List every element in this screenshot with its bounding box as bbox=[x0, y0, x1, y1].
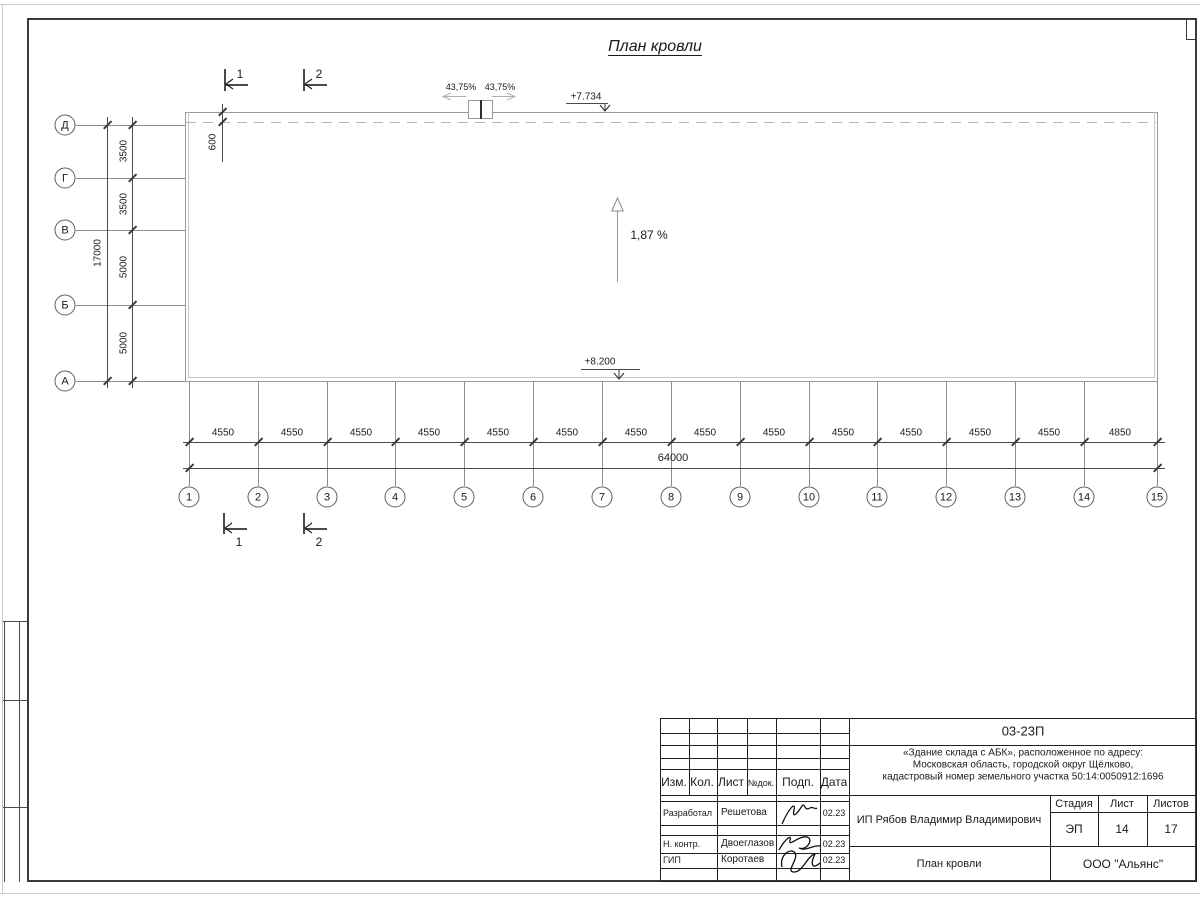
elevation-top-arrow-icon bbox=[599, 104, 611, 112]
section-2-label: 2 bbox=[316, 535, 323, 549]
axis-col-circle: 3 bbox=[317, 487, 338, 508]
axis-col-circle: 9 bbox=[730, 487, 751, 508]
axis-col-line bbox=[533, 381, 534, 486]
dim-label: 4850 bbox=[1109, 428, 1131, 439]
dim-line-cols bbox=[183, 442, 1165, 443]
axis-col-circle: 2 bbox=[248, 487, 269, 508]
signature bbox=[777, 845, 823, 875]
section-arrow-icon bbox=[304, 522, 313, 534]
drain-funnel-axis bbox=[480, 100, 482, 119]
signer-date: 02.23 bbox=[823, 855, 846, 865]
axis-col-line bbox=[877, 381, 878, 486]
company-name: ООО "Альянс" bbox=[1083, 857, 1163, 871]
section-arrow-icon bbox=[224, 522, 233, 534]
axis-row-circle: Д bbox=[55, 115, 76, 136]
dim-label: 4550 bbox=[556, 428, 578, 439]
left-stamp-line bbox=[4, 621, 5, 882]
dim-line-rows bbox=[132, 117, 133, 388]
roof-inner-outline bbox=[188, 112, 1155, 378]
titleblock-line bbox=[660, 745, 1197, 746]
dim-label: 4550 bbox=[487, 428, 509, 439]
slope-arrow-right-icon bbox=[491, 92, 517, 101]
dim-label-parapet: 600 bbox=[208, 134, 219, 151]
axis-row-circle: В bbox=[55, 220, 76, 241]
signer-role: ГИП bbox=[663, 855, 681, 865]
titleblock-line bbox=[717, 718, 718, 882]
signer-name: Двоеглазов bbox=[721, 838, 774, 849]
elevation-top-label: +7.734 bbox=[571, 92, 602, 103]
slope-label-right: 43,75% bbox=[485, 82, 516, 92]
dim-label: 4550 bbox=[625, 428, 647, 439]
axis-col-line bbox=[809, 381, 810, 486]
col-header-data: Дата bbox=[821, 775, 848, 789]
titleblock-line bbox=[1050, 795, 1051, 882]
section-1-label: 1 bbox=[236, 535, 243, 549]
dim-label: 4550 bbox=[763, 428, 785, 439]
slope-main-label: 1,87 % bbox=[630, 228, 667, 242]
frame-corner-box bbox=[1186, 20, 1197, 40]
dim-label: 4550 bbox=[969, 428, 991, 439]
dim-line-row-total bbox=[107, 117, 108, 388]
stage-value: ЭП bbox=[1065, 822, 1082, 836]
dim-label: 4550 bbox=[832, 428, 854, 439]
signature bbox=[779, 799, 819, 827]
axis-col-line bbox=[1157, 381, 1158, 486]
drawing-sheet: План кровли 43,75% 43,75% +7.734 +8.200 … bbox=[0, 0, 1200, 900]
dim-total-label: 64000 bbox=[658, 452, 689, 464]
signer-date: 02.23 bbox=[823, 808, 846, 818]
titleblock-line bbox=[849, 846, 1197, 847]
section-arrow-icon bbox=[304, 78, 313, 90]
dim-label: 3500 bbox=[119, 140, 130, 162]
axis-col-line bbox=[671, 381, 672, 486]
axis-col-circle: 7 bbox=[592, 487, 613, 508]
titleblock-line bbox=[1098, 795, 1099, 846]
drawing-name: План кровли bbox=[917, 858, 982, 870]
axis-col-circle: 10 bbox=[799, 487, 820, 508]
dim-label: 3500 bbox=[119, 193, 130, 215]
left-stamp-line bbox=[3, 700, 27, 701]
dim-label: 4550 bbox=[1038, 428, 1060, 439]
titleblock-line bbox=[660, 801, 849, 802]
signer-name: Решетова bbox=[721, 807, 767, 818]
axis-col-circle: 12 bbox=[936, 487, 957, 508]
axis-row-circle: Б bbox=[55, 295, 76, 316]
sheet-value: 14 bbox=[1115, 822, 1128, 836]
client-name: ИП Рябов Владимир Владимирович bbox=[857, 814, 1042, 826]
axis-col-circle: 6 bbox=[523, 487, 544, 508]
dim-line-col-total bbox=[183, 468, 1165, 469]
titleblock-line bbox=[1147, 795, 1148, 846]
sheet-edge-top bbox=[0, 4, 1200, 5]
signer-date: 02.23 bbox=[823, 839, 846, 849]
project-line: Московская область, городской округ Щёлк… bbox=[913, 760, 1134, 771]
sheet-label: Лист bbox=[1110, 798, 1134, 810]
roof-parapet-dashed-line bbox=[186, 122, 1156, 123]
dim-label: 4550 bbox=[900, 428, 922, 439]
sheets-value: 17 bbox=[1164, 822, 1177, 836]
axis-col-line bbox=[946, 381, 947, 486]
slope-label-left: 43,75% bbox=[446, 82, 477, 92]
titleblock-line bbox=[660, 825, 849, 826]
titleblock-line bbox=[849, 718, 850, 882]
axis-col-line bbox=[1015, 381, 1016, 486]
titleblock-line bbox=[660, 769, 849, 770]
axis-col-line bbox=[602, 381, 603, 486]
sheets-label: Листов bbox=[1153, 798, 1189, 810]
sheet-edge-left bbox=[2, 4, 3, 893]
dim-label: 4550 bbox=[281, 428, 303, 439]
axis-col-circle: 1 bbox=[179, 487, 200, 508]
axis-col-line bbox=[327, 381, 328, 486]
left-stamp-line bbox=[3, 621, 27, 622]
titleblock-line bbox=[1050, 812, 1197, 813]
dim-label: 5000 bbox=[119, 256, 130, 278]
elevation-bottom-arrow-icon bbox=[613, 372, 625, 380]
dim-label: 4550 bbox=[418, 428, 440, 439]
titleblock-line bbox=[660, 795, 1197, 796]
sheet-edge-bottom bbox=[0, 893, 1200, 894]
axis-col-circle: 15 bbox=[1147, 487, 1168, 508]
col-header-izm: Изм. bbox=[661, 775, 687, 789]
axis-col-circle: 11 bbox=[867, 487, 888, 508]
axis-col-line bbox=[258, 381, 259, 486]
axis-col-circle: 13 bbox=[1005, 487, 1026, 508]
section-2-label: 2 bbox=[316, 67, 323, 81]
axis-row-circle: Г bbox=[55, 168, 76, 189]
slope-direction-arrow-icon bbox=[609, 196, 626, 284]
axis-col-circle: 4 bbox=[385, 487, 406, 508]
page-title: План кровли bbox=[608, 38, 702, 56]
axis-col-circle: 14 bbox=[1074, 487, 1095, 508]
dim-label: 4550 bbox=[350, 428, 372, 439]
dim-total-label: 17000 bbox=[93, 239, 104, 267]
titleblock-line bbox=[660, 733, 849, 734]
axis-col-circle: 5 bbox=[454, 487, 475, 508]
project-line: «Здание склада с АБК», расположенное по … bbox=[903, 748, 1143, 759]
left-stamp-line bbox=[3, 807, 27, 808]
section-arrow-icon bbox=[225, 78, 234, 90]
dim-label: 5000 bbox=[119, 332, 130, 354]
col-header-kol: Кол. bbox=[690, 775, 714, 789]
stage-label: Стадия bbox=[1055, 798, 1093, 810]
col-header-ndok: №док. bbox=[748, 778, 774, 788]
doc-number: 03-23П bbox=[1002, 724, 1045, 739]
col-header-podp: Подп. bbox=[782, 775, 814, 789]
signer-role: Н. контр. bbox=[663, 839, 700, 849]
elevation-bottom-label: +8.200 bbox=[585, 357, 616, 368]
dim-label: 4550 bbox=[694, 428, 716, 439]
slope-arrow-left-icon bbox=[441, 92, 467, 101]
axis-col-line bbox=[395, 381, 396, 486]
axis-col-line bbox=[464, 381, 465, 486]
axis-col-line bbox=[1084, 381, 1085, 486]
project-line: кадастровый номер земельного участка 50:… bbox=[882, 772, 1163, 783]
elevation-bottom-leader bbox=[581, 369, 640, 370]
section-1-label: 1 bbox=[237, 67, 244, 81]
axis-row-circle: А bbox=[55, 371, 76, 392]
signer-name: Коротаев bbox=[721, 854, 764, 865]
titleblock-line bbox=[660, 758, 849, 759]
col-header-list: Лист bbox=[718, 775, 744, 789]
signer-role: Разработал bbox=[663, 808, 712, 818]
axis-col-line bbox=[189, 381, 190, 486]
axis-col-circle: 8 bbox=[661, 487, 682, 508]
dim-label: 4550 bbox=[212, 428, 234, 439]
left-stamp-line bbox=[19, 621, 20, 882]
axis-col-line bbox=[740, 381, 741, 486]
